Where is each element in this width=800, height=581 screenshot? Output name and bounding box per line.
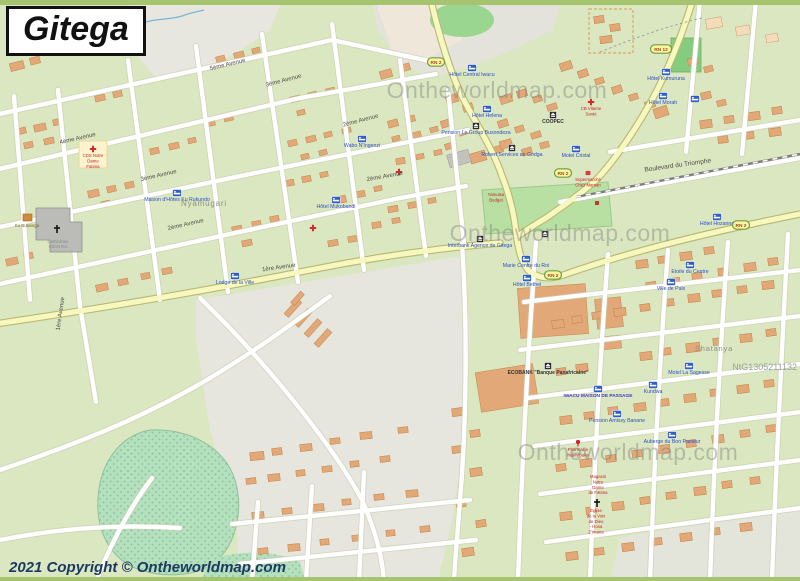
bed-icon [522, 256, 531, 263]
svg-text:de la Voix: de la Voix [587, 513, 606, 518]
bed-icon [662, 69, 671, 76]
route-badge-rn-2-563: RN 2 [555, 169, 572, 177]
bed-icon [713, 214, 722, 221]
svg-text:Z'Imana: Z'Imana [588, 530, 604, 535]
svg-text:de Dieu: de Dieu [589, 519, 604, 524]
svg-text:Dame: Dame [87, 158, 99, 163]
monument-icon [509, 145, 516, 152]
map-screenshot: 5ème Avenue4ème Avenue3ème Avenue3ème Av… [0, 0, 800, 581]
map-edge-top [0, 0, 800, 5]
bed-icon [468, 65, 477, 72]
bed-icon [594, 386, 603, 393]
svg-text:Robert Services an Godga: Robert Services an Godga [481, 152, 542, 158]
svg-text:COOPEC: COOPEC [542, 119, 564, 125]
park-marker [595, 201, 599, 205]
svg-text:Motel Cristal: Motel Cristal [562, 153, 591, 159]
svg-text:Magasin: Magasin [590, 474, 607, 479]
map-canvas: 5ème Avenue4ème Avenue3ème Avenue3ème Av… [0, 0, 800, 581]
svg-text:Kundwa: Kundwa [644, 389, 663, 395]
svg-text:Dame: Dame [592, 485, 604, 490]
route-badge-rn-2-553: RN 2 [545, 271, 562, 279]
misc-label-christ-roi: Christ Roi [49, 244, 68, 249]
svg-text:Wabo N'Ingenzi: Wabo N'Ingenzi [344, 143, 380, 149]
svg-text:Pension Amissy Banane: Pension Amissy Banane [589, 418, 645, 424]
svg-text:Hôtel Helena: Hôtel Helena [472, 113, 502, 119]
bed-icon [523, 275, 532, 282]
svg-text:Église: Église [590, 508, 602, 513]
bed-icon [358, 136, 367, 143]
bed-icon [231, 273, 240, 280]
svg-text:Hôtel Mukobandi: Hôtel Mukobandi [317, 204, 356, 210]
svg-text:Marie Centre du Roi: Marie Centre du Roi [503, 263, 549, 269]
svg-text:Fatima: Fatima [86, 164, 100, 169]
svg-text:RN 2: RN 2 [548, 273, 559, 279]
svg-text:Chez Maman: Chez Maman [575, 182, 601, 187]
monument-icon [473, 123, 480, 130]
poi-yamutsa-budget: YamutsaBudget [488, 192, 505, 202]
bank-icon [550, 112, 557, 119]
map-code: NtG1305211132 [732, 362, 797, 372]
watermark: Ontheworldmap.com [518, 439, 739, 465]
svg-text:Hôtel Hozanna: Hôtel Hozanna [700, 221, 734, 227]
map-title-box: Gitega [6, 6, 146, 56]
bed-icon [668, 432, 677, 439]
route-badge-rn-2-436: RN 2 [428, 58, 445, 66]
svg-text:Supermarché: Supermarché [575, 177, 601, 182]
svg-text:Yamutsa: Yamutsa [488, 192, 505, 197]
svg-text:RN 12: RN 12 [654, 47, 668, 53]
svg-text:ECOBANK "Banque Panafricaine": ECOBANK "Banque Panafricaine" [508, 370, 589, 376]
bed-icon [686, 262, 695, 269]
area-label-shatanya: Shatanya [695, 344, 733, 353]
svg-text:RN 2: RN 2 [558, 171, 569, 177]
copyright-text: 2021 Copyright © Ontheworldmap.com [9, 559, 286, 576]
bed-icon [613, 411, 622, 418]
map-edge-bottom [0, 577, 800, 581]
svg-text:Hôtel Kumuruna: Hôtel Kumuruna [647, 76, 685, 82]
svg-text:- Hosa: - Hosa [590, 524, 603, 529]
bank-icon [545, 363, 552, 370]
bed-icon [572, 146, 581, 153]
svg-text:Etoile du Centre: Etoile du Centre [671, 269, 708, 275]
svg-text:Pension Le Group Busondeza: Pension Le Group Busondeza [441, 130, 510, 136]
svg-text:IWACU MAISON DE PASSAGE: IWACU MAISON DE PASSAGE [564, 393, 634, 399]
svg-text:Ville de Paix: Ville de Paix [657, 286, 686, 292]
svg-text:de Fatima: de Fatima [588, 490, 608, 495]
svg-text:Budget: Budget [489, 197, 503, 202]
svg-text:CDS Notre: CDS Notre [83, 153, 104, 158]
svg-text:Hôtel Morah: Hôtel Morah [649, 100, 677, 106]
bed-icon [332, 197, 341, 204]
svg-text:Lodge de la Ville: Lodge de la Ville [216, 280, 254, 286]
svg-text:Notre: Notre [593, 479, 604, 484]
misc-label-ku-butwinga: Ku Butwinga [15, 223, 40, 228]
bed-icon [649, 382, 658, 389]
bed-icon [685, 363, 694, 370]
svg-text:RN 2: RN 2 [431, 60, 442, 66]
bed-icon [691, 96, 700, 103]
watermark: Ontheworldmap.com [450, 220, 671, 246]
route-badge-rn-12-661: RN 12 [651, 45, 672, 53]
bed-icon [173, 190, 182, 197]
svg-text:Motel La Sagesse: Motel La Sagesse [668, 370, 710, 376]
svg-text:Maison d'Hôtes Ku Rukundo: Maison d'Hôtes Ku Rukundo [144, 197, 210, 203]
svg-text:CB Vitame: CB Vitame [581, 106, 602, 111]
shop-icon [585, 171, 591, 176]
watermark: Ontheworldmap.com [387, 77, 608, 103]
svg-text:Hôtel Bethel: Hôtel Bethel [513, 282, 541, 288]
route-badge-rn-2-741: RN 2 [733, 221, 750, 229]
page-title: Gitega [23, 10, 129, 48]
shop-icon-small [23, 214, 32, 221]
bed-icon [667, 279, 676, 286]
bed-icon [483, 106, 492, 113]
bed-icon [659, 93, 668, 100]
svg-text:RN 2: RN 2 [736, 223, 747, 229]
svg-text:Santé: Santé [585, 111, 597, 116]
